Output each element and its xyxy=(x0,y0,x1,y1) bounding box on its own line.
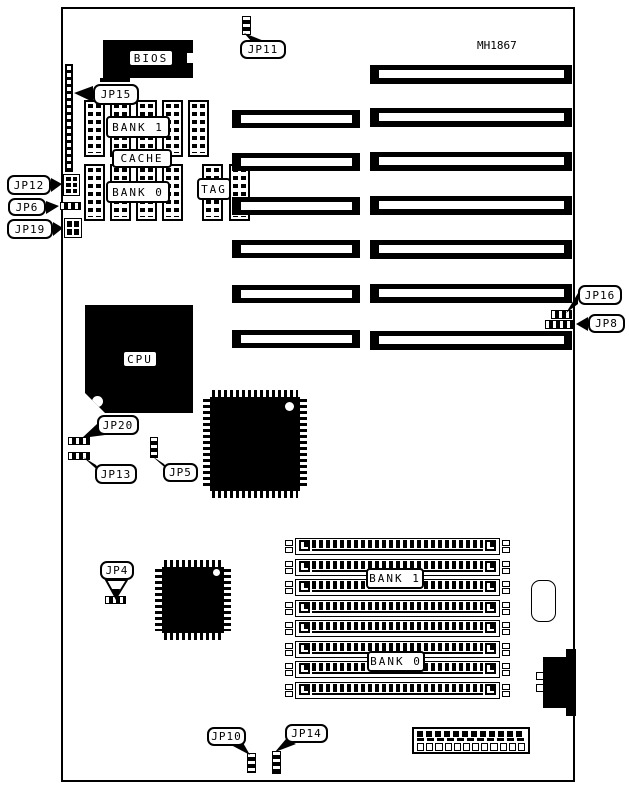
mount-pad xyxy=(502,629,510,635)
jp16-jumper xyxy=(551,310,572,319)
cache-socket xyxy=(84,100,105,157)
slot-opening xyxy=(241,335,352,343)
motherboard-diagram: MH1867 BIOS BANK 1 CACHE BANK 0 TAG xyxy=(0,0,629,791)
simm-bank1-label: BANK 1 xyxy=(366,568,424,589)
jp6-callout-tail xyxy=(46,201,59,214)
isa-slot-long xyxy=(370,331,572,350)
mount-pad xyxy=(502,540,510,546)
cache-socket xyxy=(188,100,209,157)
simm-keyline xyxy=(312,693,483,695)
slot-opening xyxy=(241,290,352,298)
mount-pad xyxy=(285,650,293,656)
mount-pad xyxy=(502,581,510,587)
mount-pad xyxy=(285,663,293,669)
power-pin-row-bottom xyxy=(417,743,525,751)
mount-pad xyxy=(285,581,293,587)
power-pin xyxy=(445,743,452,751)
simm-latch xyxy=(485,622,496,633)
cache-bank0-label: BANK 0 xyxy=(106,181,170,203)
isa-slot-long xyxy=(370,196,572,215)
mount-pad xyxy=(285,602,293,608)
mount-pad xyxy=(502,568,510,574)
simm-latch xyxy=(299,684,310,695)
power-pin-row-mid xyxy=(417,738,525,741)
pin-row xyxy=(203,399,210,489)
mount-pad xyxy=(502,561,510,567)
mount-pad xyxy=(502,684,510,690)
jp15-pin-header xyxy=(65,64,73,172)
cache-bank1-label: BANK 1 xyxy=(106,116,170,138)
simm-latch xyxy=(485,602,496,613)
simm-keyline xyxy=(312,590,483,592)
power-pin xyxy=(509,743,516,751)
mount-pad xyxy=(285,622,293,628)
slot-opening xyxy=(241,115,352,123)
jp11-jumper xyxy=(242,16,251,35)
simm-latch xyxy=(299,602,310,613)
simm-slot xyxy=(285,620,510,637)
jp14-jumper xyxy=(272,751,281,774)
simm-slot xyxy=(285,682,510,699)
isa-slot-short xyxy=(232,285,360,303)
jp13-jumper xyxy=(68,452,90,460)
qfp-chip-1 xyxy=(203,390,307,498)
mount-pad xyxy=(502,643,510,649)
bios-chip-notch xyxy=(187,53,194,63)
jp8-callout: JP8 xyxy=(588,314,625,333)
simm-latch xyxy=(299,581,310,592)
simm-latch xyxy=(485,561,496,572)
pin-row xyxy=(164,560,222,567)
pin xyxy=(73,189,78,193)
mount-pad xyxy=(285,684,293,690)
qfp-chip-2 xyxy=(155,560,231,640)
simm-keyline xyxy=(312,549,483,551)
power-pin xyxy=(454,743,461,751)
mount-pad xyxy=(285,561,293,567)
mount-pad xyxy=(285,588,293,594)
keyboard-connector-tab xyxy=(536,672,544,680)
pin xyxy=(73,177,78,181)
jp20-callout: JP20 xyxy=(97,415,139,435)
slot-opening xyxy=(379,245,564,253)
mount-pad xyxy=(502,663,510,669)
pin xyxy=(66,177,71,181)
simm-contacts xyxy=(312,643,483,651)
pin-row xyxy=(155,569,162,631)
simm-latch xyxy=(299,561,310,572)
slot-opening xyxy=(241,158,352,166)
slot-opening xyxy=(379,336,564,344)
slot-opening xyxy=(379,201,564,209)
slot-opening xyxy=(379,289,564,297)
power-connector xyxy=(412,727,530,754)
jp20-jumper xyxy=(68,437,90,445)
simm-bank0-label: BANK 0 xyxy=(367,651,425,672)
mount-pad xyxy=(502,588,510,594)
mount-pad xyxy=(502,609,510,615)
mount-pad xyxy=(285,670,293,676)
bios-label: BIOS xyxy=(128,49,174,67)
qfp-pin1-dot xyxy=(213,569,220,576)
jp5-callout: JP5 xyxy=(163,463,198,482)
mount-pad xyxy=(285,643,293,649)
crystal-outline xyxy=(531,580,556,622)
jp8-callout-tail xyxy=(576,317,588,331)
mount-pad xyxy=(502,547,510,553)
simm-latch xyxy=(299,622,310,633)
jp16-callout: JP16 xyxy=(578,285,622,305)
cache-socket xyxy=(84,164,105,221)
isa-slot-long xyxy=(370,240,572,259)
jp4-jumper xyxy=(105,596,126,604)
mount-pad xyxy=(285,629,293,635)
jp6-jumper xyxy=(60,202,81,210)
pin-row xyxy=(212,491,298,498)
jp12-jumper-block xyxy=(63,174,80,196)
slot-opening xyxy=(379,113,564,121)
power-pin-row-top xyxy=(417,731,525,737)
simm-latch xyxy=(299,643,310,654)
simm-latch xyxy=(485,684,496,695)
tag-label: TAG xyxy=(197,178,231,200)
mount-pad xyxy=(502,602,510,608)
power-pin xyxy=(518,743,525,751)
simm-latch xyxy=(299,540,310,551)
simm-keyline xyxy=(312,672,483,674)
simm-latch xyxy=(485,540,496,551)
isa-slot-short xyxy=(232,110,360,128)
mount-pad xyxy=(502,650,510,656)
power-pin xyxy=(417,743,424,751)
power-pin xyxy=(472,743,479,751)
isa-slot-short xyxy=(232,330,360,348)
mount-pad xyxy=(502,622,510,628)
jp15-callout: JP15 xyxy=(93,84,139,105)
simm-latch xyxy=(485,663,496,674)
pin xyxy=(73,183,78,187)
mount-pad xyxy=(285,547,293,553)
power-pin xyxy=(490,743,497,751)
pin xyxy=(67,229,72,235)
jp12-callout: JP12 xyxy=(7,175,51,195)
pin xyxy=(67,221,72,227)
simm-contacts xyxy=(312,684,483,692)
isa-slot-short xyxy=(232,240,360,258)
smd-component xyxy=(100,78,130,82)
isa-slot-long xyxy=(370,284,572,303)
simm-keyline xyxy=(312,611,483,613)
keyboard-connector-tab xyxy=(536,684,544,692)
jp11-callout: JP11 xyxy=(240,40,286,59)
slot-opening xyxy=(241,245,352,253)
model-number: MH1867 xyxy=(477,39,517,52)
pin-row xyxy=(224,569,231,631)
power-pin xyxy=(426,743,433,751)
isa-slot-long xyxy=(370,65,572,84)
simm-slot xyxy=(285,538,510,555)
jp19-jumper-block xyxy=(64,218,82,238)
simm-contacts xyxy=(312,540,483,548)
slot-opening xyxy=(379,157,564,165)
mount-pad xyxy=(285,691,293,697)
pin-row xyxy=(164,633,222,640)
pin-row xyxy=(300,399,307,489)
qfp-body xyxy=(162,567,224,633)
jp4-callout: JP4 xyxy=(100,561,134,580)
pin-row xyxy=(212,390,298,397)
pin xyxy=(66,183,71,187)
pin xyxy=(66,189,71,193)
power-pin xyxy=(435,743,442,751)
jp13-callout: JP13 xyxy=(95,464,137,484)
qfp-body xyxy=(210,397,300,491)
mount-pad xyxy=(502,691,510,697)
simm-latch xyxy=(485,643,496,654)
mount-pad xyxy=(285,568,293,574)
mount-pad xyxy=(502,670,510,676)
power-pin xyxy=(500,743,507,751)
qfp-pin1-dot xyxy=(285,402,294,411)
power-pin xyxy=(481,743,488,751)
simm-slot xyxy=(285,600,510,617)
slot-opening xyxy=(379,70,564,78)
simm-contacts xyxy=(312,602,483,610)
isa-slot-short xyxy=(232,153,360,171)
cpu-label: CPU xyxy=(122,350,158,368)
jp14-callout: JP14 xyxy=(285,724,328,743)
jp5-jumper xyxy=(150,437,158,458)
pin xyxy=(74,221,79,227)
simm-latch xyxy=(485,581,496,592)
jp19-callout: JP19 xyxy=(7,219,53,239)
jp8-jumper xyxy=(545,320,575,329)
isa-slot-short xyxy=(232,197,360,215)
jp6-callout: JP6 xyxy=(8,198,46,216)
simm-latch xyxy=(299,663,310,674)
jp10-callout: JP10 xyxy=(207,727,246,746)
pin xyxy=(74,229,79,235)
mount-pad xyxy=(285,609,293,615)
cache-label: CACHE xyxy=(112,149,172,168)
isa-slot-long xyxy=(370,152,572,171)
power-pin xyxy=(463,743,470,751)
isa-slot-long xyxy=(370,108,572,127)
keyboard-connector-body xyxy=(543,657,568,708)
mount-pad xyxy=(285,540,293,546)
simm-contacts xyxy=(312,622,483,630)
slot-opening xyxy=(241,202,352,210)
simm-keyline xyxy=(312,631,483,633)
jp10-jumper xyxy=(247,753,256,773)
